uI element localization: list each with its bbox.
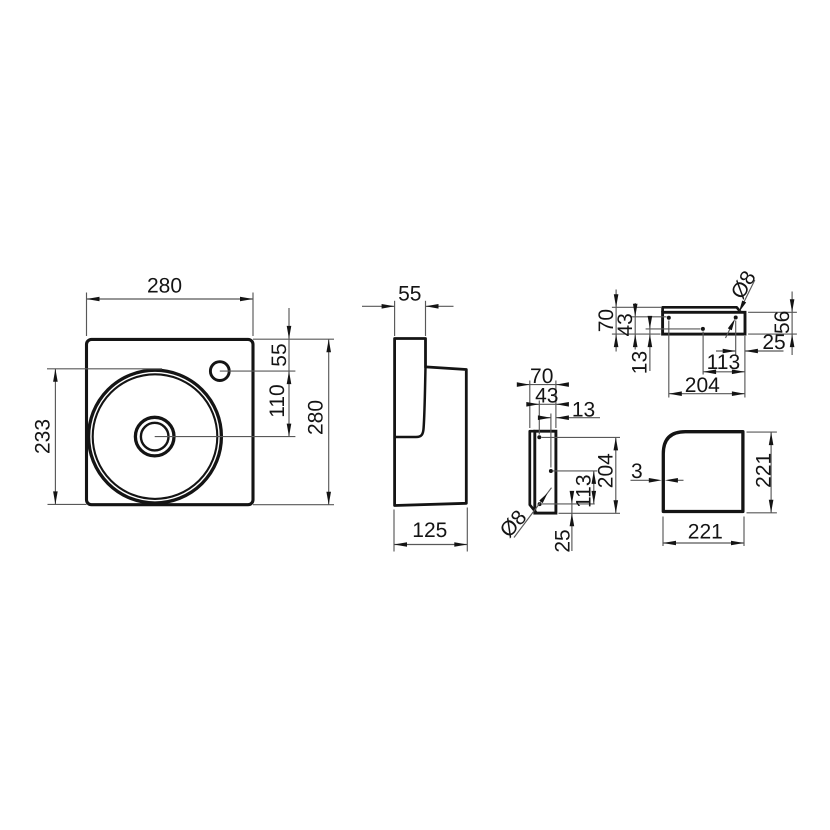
svg-text:204: 204: [685, 374, 720, 397]
svg-text:113: 113: [572, 474, 595, 507]
svg-text:204: 204: [595, 453, 618, 488]
svg-text:43: 43: [614, 313, 637, 336]
svg-text:25: 25: [762, 331, 785, 354]
svg-text:125: 125: [412, 519, 447, 542]
svg-text:221: 221: [752, 453, 775, 488]
svg-text:13: 13: [629, 351, 652, 374]
svg-text:110: 110: [266, 384, 289, 417]
svg-text:233: 233: [32, 419, 55, 454]
svg-text:25: 25: [551, 529, 574, 552]
svg-text:113: 113: [707, 351, 740, 374]
svg-text:13: 13: [572, 398, 595, 421]
svg-text:3: 3: [631, 460, 643, 483]
svg-text:43: 43: [535, 385, 558, 408]
svg-text:280: 280: [305, 400, 328, 435]
svg-text:280: 280: [147, 274, 182, 297]
svg-text:55: 55: [398, 283, 421, 306]
svg-text:221: 221: [688, 521, 723, 544]
svg-text:55: 55: [268, 343, 291, 366]
